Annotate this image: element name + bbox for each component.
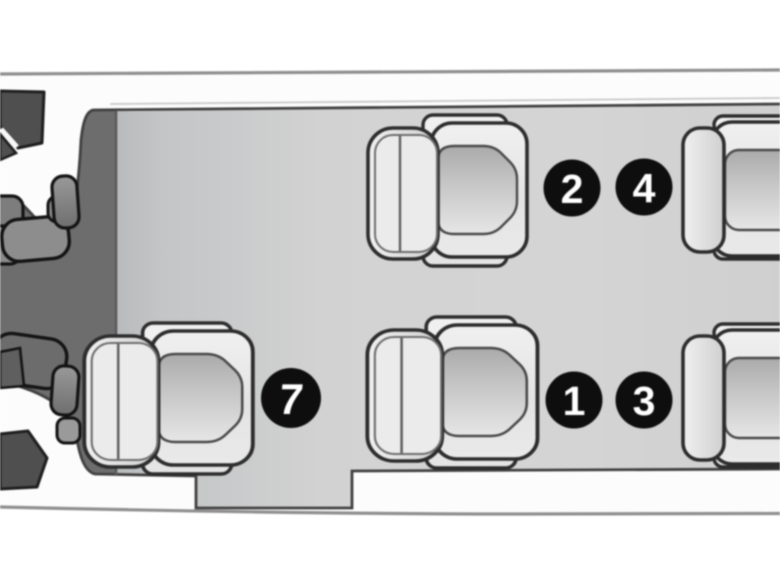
svg-text:1: 1	[563, 378, 586, 424]
svg-text:2: 2	[561, 166, 584, 212]
svg-text:4: 4	[633, 165, 656, 211]
svg-text:3: 3	[633, 378, 656, 424]
svg-text:7: 7	[276, 376, 305, 424]
